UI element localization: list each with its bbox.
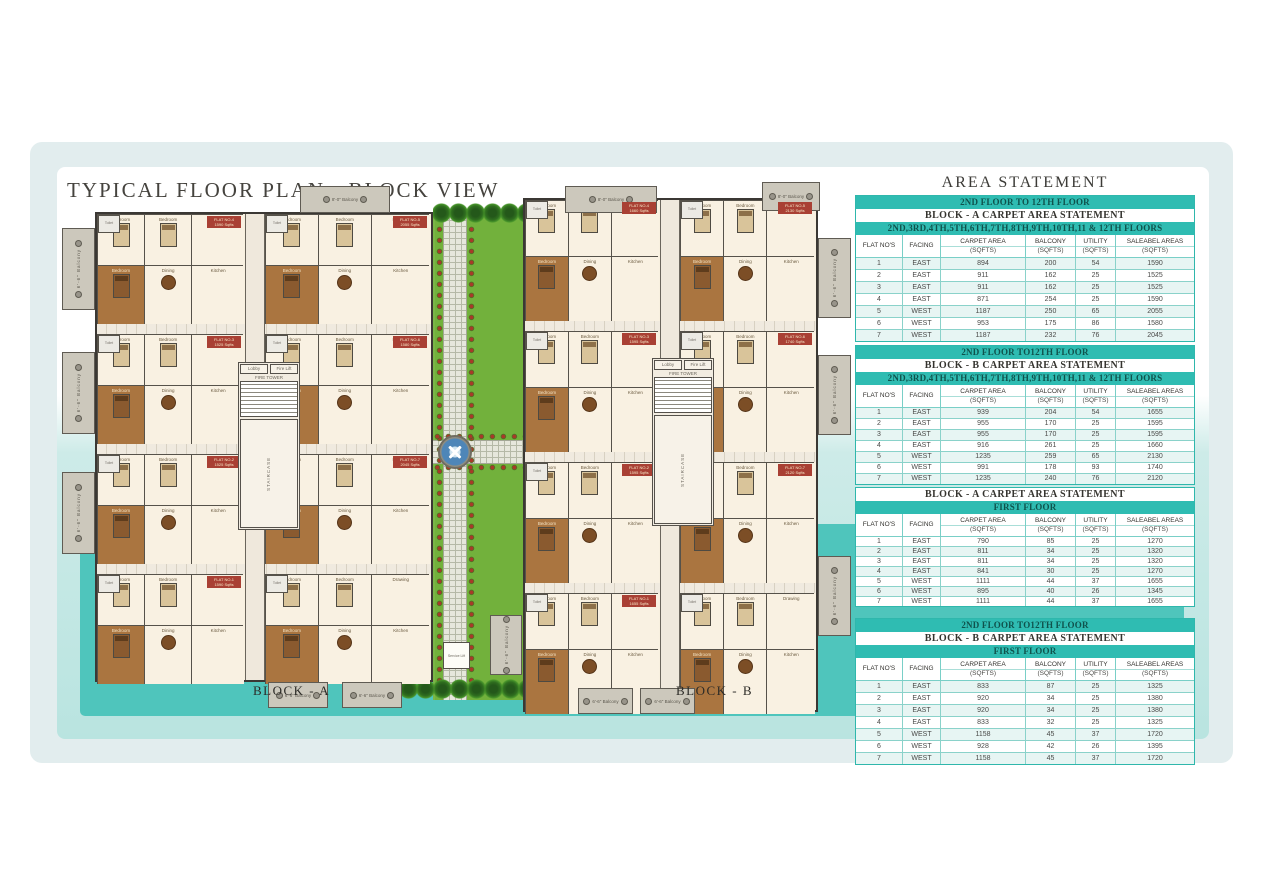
column-header: CARPET AREA(SQFTS)	[941, 658, 1026, 681]
column-header-sub: (SQFTS)	[1026, 396, 1075, 405]
balcony-label: 6'-6" Balcony	[76, 249, 81, 288]
room-kitchen: Kitchen	[612, 519, 659, 583]
room-dining: Dining	[145, 506, 191, 564]
table-cell: WEST	[903, 452, 941, 463]
room-label: Dining	[338, 508, 351, 513]
table-cell: 5	[856, 729, 903, 741]
table-cell: 811	[941, 547, 1026, 557]
column-header-label: CARPET AREA	[960, 238, 1005, 246]
flower-pot-icon	[831, 249, 838, 256]
room-label: Bedroom	[336, 337, 354, 342]
table-cell: 790	[941, 537, 1026, 547]
column-header-label: SALEABEL AREAS	[1127, 517, 1184, 525]
room-label: Kitchen	[393, 388, 408, 393]
bed-icon	[113, 274, 130, 298]
table-cell: 928	[941, 741, 1026, 753]
room-bedroom: Bedroom	[145, 575, 191, 625]
column-header-label: FLAT NO'S	[863, 242, 895, 250]
flat-sqfts: 1525 Sqfts	[207, 462, 241, 467]
flower-pot-icon	[503, 616, 510, 623]
room-label: Bedroom	[736, 596, 754, 601]
room-kitchen: Kitchen	[372, 386, 430, 444]
room-bedroom: Bedroom	[145, 335, 191, 385]
room-label: Bedroom	[159, 577, 177, 582]
room-dining: Dining	[145, 386, 191, 444]
table-cell: 1660	[1116, 441, 1194, 452]
room-master-bedroom: Bedroom	[526, 257, 568, 321]
table-cell: EAST	[903, 567, 941, 577]
room-label: Bedroom	[283, 268, 301, 273]
column-header-label: UTILITY	[1083, 238, 1107, 246]
table-cell: 1525	[1116, 282, 1194, 294]
room-dining: Dining	[319, 386, 371, 444]
room-label: Bedroom	[736, 203, 754, 208]
flat-sqfts: 1660 Sqfts	[622, 208, 656, 213]
balcony-label: 8'-0" Balcony	[332, 197, 358, 202]
table-row: 1EAST894200541590	[856, 258, 1194, 270]
table-cell: 2045	[1116, 330, 1194, 341]
table-row: 7WEST115845371720	[856, 753, 1194, 764]
room-bedroom: Bedroom	[319, 455, 371, 505]
flower-pot-icon	[75, 484, 82, 491]
table-row: 6WEST991178931740	[856, 463, 1194, 474]
table-cell: 54	[1076, 258, 1116, 270]
column-header: FACING	[903, 235, 941, 258]
service-lift: Service Lift	[443, 642, 470, 669]
flat-sqfts: 2045 Sqfts	[393, 462, 427, 467]
table-cell: EAST	[903, 717, 941, 729]
table-cell: 40	[1026, 587, 1076, 597]
column-header-label: UTILITY	[1083, 517, 1107, 525]
room-kitchen: Kitchen	[192, 506, 244, 564]
table-cell: 833	[941, 717, 1026, 729]
table-cell: 2	[856, 270, 903, 282]
dining-table-icon	[161, 395, 176, 410]
table-cell: WEST	[903, 729, 941, 741]
flat-sqfts: 1580 Sqfts	[393, 342, 427, 347]
flat-number-badge: FLAT NO-31595 Sqfts	[622, 333, 656, 345]
table-cell: 25	[1076, 693, 1116, 705]
column-header: FLAT NO'S	[856, 514, 903, 537]
room-label: Bedroom	[112, 388, 130, 393]
bed-icon	[737, 340, 754, 364]
table-cell: 25	[1076, 547, 1116, 557]
room-label: Dining	[583, 390, 596, 395]
room-dining: Dining	[724, 650, 766, 714]
flower-pot-icon	[75, 415, 82, 422]
table-cell: 37	[1076, 729, 1116, 741]
lobby-box: Lobby	[240, 364, 268, 374]
room-master-bedroom: Bedroom	[98, 506, 144, 564]
fire-tower-stairs	[240, 381, 298, 417]
column-header-label: UTILITY	[1083, 388, 1107, 396]
flat-sqfts: 1590 Sqfts	[207, 582, 241, 587]
lobby-box: Lobby	[654, 360, 682, 370]
staircase-box: STAIRCASE	[654, 415, 712, 524]
table-block-band: BLOCK - B CARPET AREA STATEMENT	[856, 632, 1194, 645]
table-cell: 1720	[1116, 753, 1194, 764]
column-header-label: FACING	[909, 242, 933, 250]
table-cell: 25	[1076, 430, 1116, 441]
flat-sqfts: 2055 Sqfts	[393, 222, 427, 227]
table-cell: 5	[856, 306, 903, 318]
table-cell: EAST	[903, 547, 941, 557]
fire-lift-box: Fire Lift	[684, 360, 712, 370]
room-label: Dining	[338, 268, 351, 273]
fire-lift-box: Fire Lift	[270, 364, 298, 374]
room-drawing: Drawing	[767, 594, 815, 649]
table-cell: EAST	[903, 408, 941, 419]
table-cell: 178	[1026, 463, 1076, 474]
table-cell: 1187	[941, 306, 1026, 318]
column-header-sub: (SQFTS)	[941, 669, 1025, 678]
bed-icon	[694, 527, 711, 551]
block-a-label: BLOCK - A	[253, 683, 330, 699]
bed-icon	[336, 583, 353, 607]
column-header: CARPET AREA(SQFTS)	[941, 514, 1026, 537]
table-row: 4EAST84130251270	[856, 567, 1194, 577]
column-header: UTILITY(SQFTS)	[1076, 385, 1116, 408]
balcony-label: 6'-6" Balcony	[359, 693, 385, 698]
flat-sqfts: 1740 Sqfts	[778, 339, 812, 344]
table-cell: 42	[1026, 741, 1076, 753]
table-cell: 2	[856, 547, 903, 557]
balcony: 6'-6" Balcony	[818, 556, 851, 636]
flat-sqfts: 2120 Sqfts	[778, 470, 812, 475]
table-cell: 911	[941, 270, 1026, 282]
column-header-sub: (SQFTS)	[1076, 396, 1115, 405]
table-cell: 920	[941, 693, 1026, 705]
table-cell: WEST	[903, 306, 941, 318]
room-label: Bedroom	[159, 217, 177, 222]
table-cell: 4	[856, 567, 903, 577]
table-cell: 1320	[1116, 547, 1194, 557]
column-header-label: CARPET AREA	[960, 517, 1005, 525]
bed-icon	[737, 602, 754, 626]
room-label: Dining	[739, 652, 752, 657]
table-cell: 25	[1076, 419, 1116, 430]
room-label: Dining	[583, 259, 596, 264]
column-header: CARPET AREA(SQFTS)	[941, 385, 1026, 408]
table-row: 5WEST115845371720	[856, 729, 1194, 741]
flat-number-badge: FLAT NO-31525 Sqfts	[207, 336, 241, 348]
room-label: Bedroom	[581, 596, 599, 601]
room-label: Bedroom	[693, 259, 711, 264]
table-cell: EAST	[903, 681, 941, 693]
table-cell: 911	[941, 282, 1026, 294]
table-cell: 1235	[941, 474, 1026, 484]
table-cell: 1580	[1116, 318, 1194, 330]
flat-number-badge: FLAT NO-21595 Sqfts	[622, 464, 656, 476]
table-row: 1EAST939204541655	[856, 408, 1194, 419]
table-cell: 261	[1026, 441, 1076, 452]
table-cell: 34	[1026, 705, 1076, 717]
flat-sqfts: 1525 Sqfts	[207, 342, 241, 347]
table-cell: 162	[1026, 270, 1076, 282]
table-cell: 32	[1026, 717, 1076, 729]
bed-icon	[160, 463, 177, 487]
dining-table-icon	[738, 659, 753, 674]
table-cell: 1325	[1116, 717, 1194, 729]
bed-icon	[336, 463, 353, 487]
apartment-unit: BedroomBedroomDrawingBedroomDiningKitche…	[680, 200, 814, 321]
column-header-label: BALCONY	[1035, 517, 1066, 525]
flat-sqfts: 2130 Sqfts	[778, 208, 812, 213]
dining-table-icon	[337, 635, 352, 650]
room-label: Drawing	[393, 577, 410, 582]
flower-pot-icon	[589, 196, 596, 203]
room-master-bedroom: Bedroom	[526, 388, 568, 452]
flower-pot-icon	[831, 567, 838, 574]
table-cell: WEST	[903, 587, 941, 597]
room-dining: Dining	[724, 257, 766, 321]
table-row: 3EAST955170251595	[856, 430, 1194, 441]
table-cell: 811	[941, 557, 1026, 567]
room-master-bedroom: Bedroom	[98, 626, 144, 684]
room-label: Kitchen	[211, 628, 226, 633]
room-toilet: Toilet	[98, 455, 120, 473]
table-cell: 1655	[1116, 577, 1194, 587]
column-header-label: FLAT NO'S	[863, 392, 895, 400]
column-header-sub: (SQFTS)	[941, 396, 1025, 405]
table-cell: 1158	[941, 729, 1026, 741]
table-cell: 955	[941, 430, 1026, 441]
fire-tower-stairs	[654, 377, 712, 413]
stair-lift-core: LobbyFire LiftFIRE TOWERSTAIRCASE	[238, 362, 300, 530]
table-cell: 37	[1076, 753, 1116, 764]
bed-icon	[283, 634, 300, 658]
balcony-label: 6'-6" Balcony	[832, 375, 837, 414]
brochure-page: { "page": { "title": "TYPICAL FLOOR PLAN…	[0, 0, 1263, 892]
table-row: 4EAST916261251660	[856, 441, 1194, 452]
table-cell: 1595	[1116, 430, 1194, 441]
room-kitchen: Kitchen	[372, 266, 430, 324]
room-bedroom: Bedroom	[145, 215, 191, 265]
flower-pot-icon	[831, 366, 838, 373]
room-bedroom: Bedroom	[319, 215, 371, 265]
table-cell: EAST	[903, 258, 941, 270]
bed-icon	[694, 658, 711, 682]
table-cell: 991	[941, 463, 1026, 474]
column-header-label: UTILITY	[1083, 661, 1107, 669]
table-cell: 232	[1026, 330, 1076, 341]
flower-pot-icon	[806, 193, 813, 200]
bed-icon	[336, 343, 353, 367]
column-header-label: BALCONY	[1035, 388, 1066, 396]
table-cell: 6	[856, 741, 903, 753]
column-header-sub: (SQFTS)	[1116, 669, 1194, 678]
table-floors-band: 2ND,3RD,4TH,5TH,6TH,7TH,8TH,9TH,10TH,11 …	[856, 222, 1194, 235]
room-label: Kitchen	[784, 259, 799, 264]
table-cell: WEST	[903, 741, 941, 753]
flower-pot-icon	[503, 667, 510, 674]
area-statement-title: AREA STATEMENT	[855, 174, 1195, 192]
room-label: Kitchen	[628, 390, 643, 395]
column-header: SALEABEL AREAS(SQFTS)	[1116, 235, 1194, 258]
flower-pot-icon	[75, 291, 82, 298]
column-header: UTILITY(SQFTS)	[1076, 235, 1116, 258]
flower-pot-icon	[583, 698, 590, 705]
table-cell: 175	[1026, 318, 1076, 330]
table-cell: EAST	[903, 294, 941, 306]
bed-icon	[160, 583, 177, 607]
table-cell: 44	[1026, 577, 1076, 587]
room-label: Dining	[162, 268, 175, 273]
table-cell: WEST	[903, 330, 941, 341]
table-cell: 4	[856, 294, 903, 306]
block-b-label: BLOCK - B	[676, 683, 753, 699]
room-master-bedroom: Bedroom	[526, 650, 568, 714]
table-cell: 44	[1026, 597, 1076, 606]
room-kitchen: Kitchen	[767, 388, 815, 452]
flat-number-badge: FLAT NO-61580 Sqfts	[393, 336, 427, 348]
flower-pot-icon	[75, 240, 82, 247]
dining-table-icon	[337, 395, 352, 410]
table-cell: 4	[856, 717, 903, 729]
room-label: Bedroom	[112, 268, 130, 273]
balcony: 6'-6" Balcony	[62, 472, 95, 554]
column-header: FACING	[903, 385, 941, 408]
dining-table-icon	[738, 266, 753, 281]
apartment-unit: BedroomBedroomDrawingBedroomDiningKitche…	[97, 214, 243, 324]
table-cell: EAST	[903, 537, 941, 547]
room-label: Bedroom	[112, 508, 130, 513]
table-cell: 3	[856, 430, 903, 441]
table-cell: 85	[1026, 537, 1076, 547]
balcony: 6'-6" Balcony	[818, 355, 851, 435]
column-header: SALEABEL AREAS(SQFTS)	[1116, 514, 1194, 537]
table-row: 5WEST1235259652130	[856, 452, 1194, 463]
room-master-bedroom: Bedroom	[266, 266, 318, 324]
table-cell: 170	[1026, 430, 1076, 441]
table-cell: 93	[1076, 463, 1116, 474]
table-cell: 25	[1076, 294, 1116, 306]
table-cell: 1	[856, 681, 903, 693]
table-cell: 5	[856, 577, 903, 587]
table-cell: 1655	[1116, 597, 1194, 606]
table-row: 3EAST92034251380	[856, 705, 1194, 717]
room-bedroom: Bedroom	[569, 463, 611, 518]
balcony-label: 8'-0" Balcony	[598, 197, 624, 202]
bed-icon	[113, 394, 130, 418]
column-header: FLAT NO'S	[856, 385, 903, 408]
column-header: UTILITY(SQFTS)	[1076, 514, 1116, 537]
column-header: SALEABEL AREAS(SQFTS)	[1116, 658, 1194, 681]
room-dining: Dining	[319, 626, 371, 684]
room-label: Bedroom	[581, 334, 599, 339]
table-cell: 1270	[1116, 567, 1194, 577]
column-header-sub: (SQFTS)	[1026, 525, 1075, 534]
table-row: 3EAST81134251320	[856, 557, 1194, 567]
table-row: 6WEST92842261395	[856, 741, 1194, 753]
room-bedroom: Bedroom	[569, 594, 611, 649]
table-cell: 254	[1026, 294, 1076, 306]
table-cell: 2	[856, 693, 903, 705]
room-toilet: Toilet	[681, 201, 703, 219]
dining-table-icon	[337, 275, 352, 290]
table-cell: 2130	[1116, 452, 1194, 463]
room-label: Kitchen	[784, 652, 799, 657]
table-row: 4EAST871254251590	[856, 294, 1194, 306]
column-header-label: BALCONY	[1035, 238, 1066, 246]
flower-pot-icon	[387, 692, 394, 699]
table-cell: 86	[1076, 318, 1116, 330]
table-cell: 45	[1026, 753, 1076, 764]
table-cell: 170	[1026, 419, 1076, 430]
page-title: TYPICAL FLOOR PLAN - BLOCK VIEW	[67, 178, 499, 203]
table-header-row: FLAT NO'SFACINGCARPET AREA(SQFTS)BALCONY…	[856, 658, 1194, 681]
table-cell: 1590	[1116, 294, 1194, 306]
table-cell: 7	[856, 330, 903, 341]
room-label: Kitchen	[393, 268, 408, 273]
room-label: Dining	[739, 259, 752, 264]
apartment-unit: BedroomBedroomDrawingBedroomDiningKitche…	[525, 200, 658, 321]
table-cell: WEST	[903, 318, 941, 330]
table-row: 2EAST955170251595	[856, 419, 1194, 430]
bed-icon	[581, 602, 598, 626]
table-cell: 2055	[1116, 306, 1194, 318]
table-cell: 4	[856, 441, 903, 452]
column-header: FACING	[903, 514, 941, 537]
balcony: 6'-6" Balcony	[490, 615, 522, 675]
room-toilet: Toilet	[98, 575, 120, 593]
table-cell: 204	[1026, 408, 1076, 419]
room-label: Kitchen	[784, 390, 799, 395]
table-block-band: BLOCK - B CARPET AREA STATEMENT	[856, 359, 1194, 372]
table-floor-band: 2ND FLOOR TO12TH FLOOR	[856, 346, 1194, 359]
room-label: Bedroom	[283, 628, 301, 633]
table-row: 4EAST83332251325	[856, 717, 1194, 729]
table-cell: 1	[856, 537, 903, 547]
table-cell: 65	[1076, 306, 1116, 318]
column-header: FLAT NO'S	[856, 658, 903, 681]
column-header-label: FACING	[909, 392, 933, 400]
bed-icon	[113, 514, 130, 538]
column-header-label: CARPET AREA	[960, 388, 1005, 396]
room-dining: Dining	[145, 626, 191, 684]
table-cell: 1270	[1116, 537, 1194, 547]
room-label: Bedroom	[538, 652, 556, 657]
fire-tower-label: FIRE TOWER	[239, 375, 299, 380]
column-header: FACING	[903, 658, 941, 681]
room-master-bedroom: Bedroom	[98, 386, 144, 444]
dining-table-icon	[161, 515, 176, 530]
dining-table-icon	[582, 528, 597, 543]
column-header-sub: (SQFTS)	[1076, 246, 1115, 255]
room-label: Bedroom	[736, 334, 754, 339]
column-header: BALCONY(SQFTS)	[1026, 658, 1076, 681]
room-label: Bedroom	[159, 337, 177, 342]
table-cell: 250	[1026, 306, 1076, 318]
room-kitchen: Kitchen	[192, 626, 244, 684]
apartment-unit: BedroomBedroomDrawingBedroomDiningKitche…	[97, 334, 243, 444]
flat-number-badge: FLAT NO-41590 Sqfts	[207, 216, 241, 228]
flat-number-badge: FLAT NO-52055 Sqfts	[393, 216, 427, 228]
table-cell: 1380	[1116, 705, 1194, 717]
table-cell: WEST	[903, 597, 941, 606]
table-cell: 2	[856, 419, 903, 430]
table-cell: 1187	[941, 330, 1026, 341]
room-master-bedroom: Bedroom	[681, 257, 723, 321]
room-label: Bedroom	[112, 628, 130, 633]
flower-pot-icon	[75, 535, 82, 542]
bed-icon	[160, 343, 177, 367]
table-header-row: FLAT NO'SFACINGCARPET AREA(SQFTS)BALCONY…	[856, 385, 1194, 408]
table-cell: 1655	[1116, 408, 1194, 419]
flower-pot-icon	[769, 193, 776, 200]
table-cell: 25	[1076, 270, 1116, 282]
room-master-bedroom: Bedroom	[98, 266, 144, 324]
